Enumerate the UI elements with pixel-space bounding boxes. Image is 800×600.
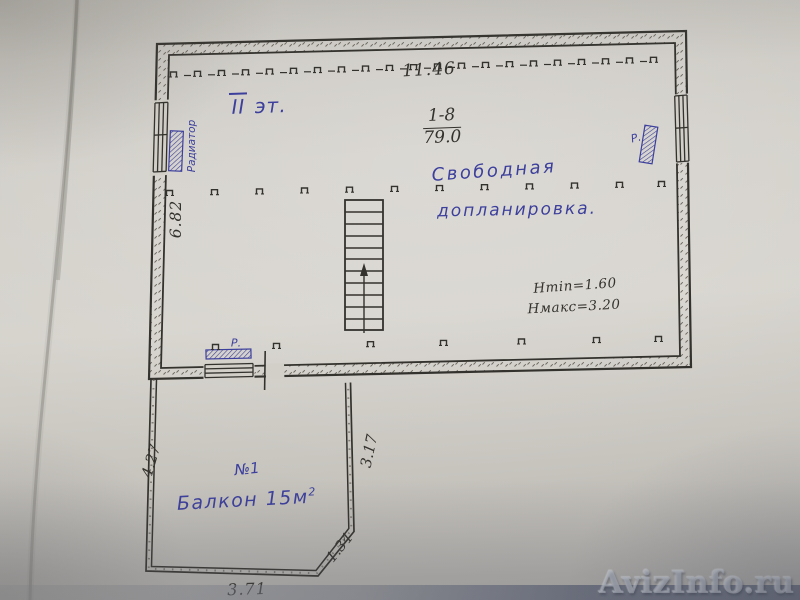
balcony-door-opening	[265, 351, 285, 390]
radiator-bottom-label: Р.	[231, 337, 241, 350]
beam-symbols-middle-row	[165, 182, 666, 196]
window-right	[674, 94, 691, 164]
main-room-walls	[149, 31, 691, 379]
radiator-right-symbol	[639, 125, 658, 164]
radiator-bottom-symbol	[206, 349, 251, 359]
room-area: 79.0	[423, 127, 462, 148]
balcony-label-sup: 2	[308, 485, 317, 498]
floor-label: II эт.	[229, 93, 287, 119]
floor-roman-numeral: II	[229, 92, 248, 119]
note-line-2: допланировка.	[437, 199, 597, 222]
window-bottom	[204, 362, 255, 379]
watermark: AvizInfo.ru	[599, 565, 795, 600]
radiator-left-symbol	[169, 131, 184, 172]
floor-suffix: эт.	[247, 93, 287, 118]
balcony-number: №1	[234, 459, 261, 480]
dimension-left: 6.82	[167, 200, 185, 239]
staircase	[345, 200, 383, 333]
room-number: 1-8	[422, 106, 461, 129]
window-left	[150, 100, 170, 177]
beam-symbols-bottom-row	[211, 337, 663, 350]
dimension-top: 11.46	[402, 59, 457, 82]
paper-fold-line	[30, 0, 77, 600]
radiator-left-label: Радиатор	[186, 120, 198, 173]
floor-plan-photo: II эт. 11.46 1-8 79.0 Свободная допланир…	[0, 0, 800, 600]
floor-plan-drawing	[0, 0, 800, 600]
balcony-walls	[146, 380, 354, 577]
room-label: 1-8 79.0	[422, 106, 461, 148]
